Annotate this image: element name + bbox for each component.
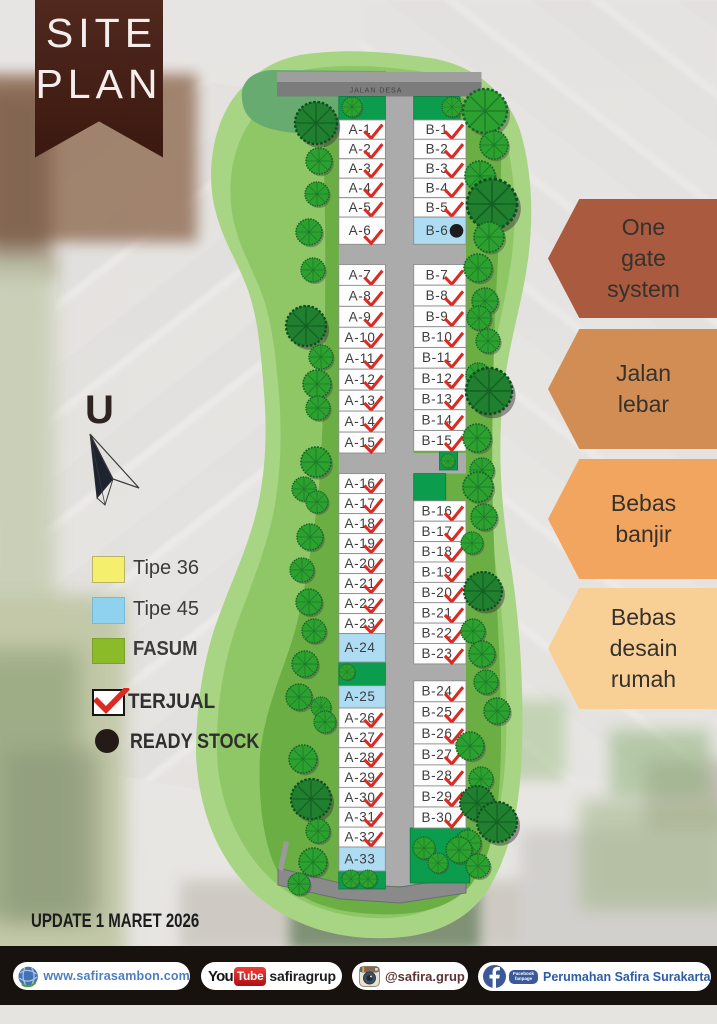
svg-text:A-31: A-31 (345, 810, 376, 825)
svg-text:B-1: B-1 (426, 122, 449, 137)
svg-text:A-28: A-28 (345, 750, 376, 765)
svg-text:B-3: B-3 (426, 161, 449, 176)
svg-text:A-16: A-16 (345, 476, 376, 491)
svg-text:B-8: B-8 (426, 288, 449, 303)
svg-text:A-27: A-27 (345, 730, 376, 745)
svg-text:A-13: A-13 (345, 393, 376, 408)
svg-text:A-25: A-25 (345, 689, 376, 704)
svg-text:A-26: A-26 (345, 710, 376, 725)
svg-text:B-5: B-5 (426, 200, 449, 215)
svg-text:B-4: B-4 (426, 180, 449, 195)
svg-text:A-21: A-21 (345, 576, 376, 591)
svg-text:A-32: A-32 (345, 830, 376, 845)
svg-text:A-20: A-20 (345, 556, 376, 571)
svg-text:B-7: B-7 (426, 267, 449, 282)
svg-text:A-18: A-18 (345, 516, 376, 531)
svg-text:JALAN DESA: JALAN DESA (350, 88, 403, 95)
svg-text:A-30: A-30 (345, 790, 376, 805)
svg-text:A-29: A-29 (345, 770, 376, 785)
svg-text:A-6: A-6 (349, 223, 372, 238)
svg-text:B-2: B-2 (426, 142, 449, 157)
svg-text:A-24: A-24 (345, 640, 376, 655)
svg-text:B-6: B-6 (426, 223, 449, 238)
svg-text:A-22: A-22 (345, 596, 376, 611)
svg-text:A-14: A-14 (345, 414, 376, 429)
svg-text:A-11: A-11 (345, 351, 375, 366)
svg-text:B-9: B-9 (426, 309, 449, 324)
svg-text:A-12: A-12 (345, 372, 376, 387)
svg-text:A-19: A-19 (345, 536, 376, 551)
svg-text:A-10: A-10 (345, 330, 376, 345)
svg-text:A-33: A-33 (345, 851, 376, 866)
svg-text:A-17: A-17 (345, 496, 376, 511)
svg-text:A-15: A-15 (345, 435, 376, 450)
svg-text:A-23: A-23 (345, 616, 376, 631)
